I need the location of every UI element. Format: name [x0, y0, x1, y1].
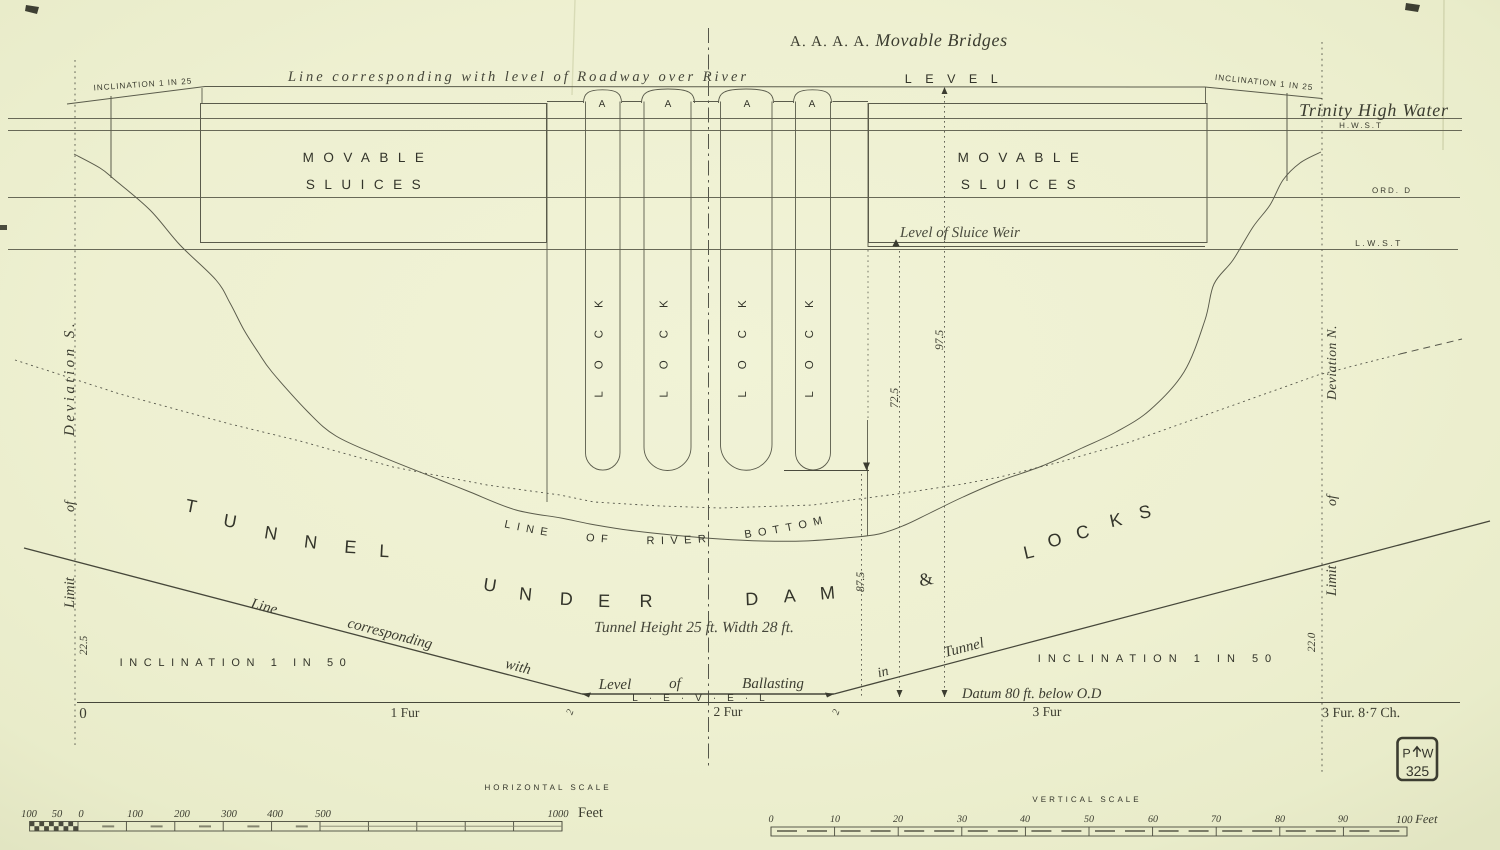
svg-text:A: A [783, 586, 796, 607]
svg-text:100: 100 [127, 809, 144, 820]
svg-text:P: P [1402, 747, 1410, 761]
svg-text:10: 10 [830, 814, 840, 825]
svg-text:A: A [665, 99, 672, 110]
svg-text:LOCK: LOCK [594, 278, 606, 397]
svg-text:LOCK: LOCK [737, 278, 749, 397]
svg-text:22.0: 22.0 [1306, 632, 1318, 652]
svg-text:Level: Level [598, 677, 631, 693]
svg-text:LEVEL: LEVEL [905, 72, 1011, 86]
svg-text:20: 20 [893, 814, 903, 825]
svg-text:1 Fur: 1 Fur [391, 705, 420, 720]
svg-text:LOCK: LOCK [659, 278, 671, 397]
svg-text:200: 200 [174, 809, 191, 820]
svg-text:N: N [303, 531, 318, 552]
svg-text:MOVABLE: MOVABLE [303, 150, 434, 165]
svg-text:A: A [809, 99, 816, 110]
svg-text:50: 50 [52, 809, 63, 820]
svg-text:87.5: 87.5 [855, 572, 867, 592]
svg-text:Line corresponding with level: Line corresponding with level of Roadway… [287, 69, 746, 85]
svg-text:E: E [344, 537, 357, 558]
svg-text:500: 500 [315, 809, 332, 820]
svg-text:INCLINATION 1 IN 50: INCLINATION 1 IN 50 [120, 657, 353, 669]
svg-text:Feet: Feet [578, 805, 603, 821]
svg-text:100: 100 [21, 809, 38, 820]
svg-text:A: A [744, 99, 751, 110]
svg-text:3 Fur. 8·7 Ch.: 3 Fur. 8·7 Ch. [1322, 706, 1400, 721]
svg-text:100 Feet: 100 Feet [1396, 812, 1438, 826]
svg-text:of: of [669, 676, 683, 692]
svg-text:LOCK: LOCK [804, 278, 816, 397]
svg-text:40: 40 [1020, 814, 1030, 825]
svg-text:2 Fur: 2 Fur [714, 704, 743, 719]
svg-text:325: 325 [1406, 763, 1430, 779]
svg-text:0: 0 [769, 814, 774, 825]
svg-text:Limit: Limit [62, 576, 78, 609]
svg-text:HORIZONTAL SCALE: HORIZONTAL SCALE [484, 783, 611, 792]
svg-text:W: W [1422, 747, 1434, 761]
svg-text:D: D [745, 589, 759, 609]
svg-text:0: 0 [79, 706, 87, 722]
svg-text:Tunnel Height 25 ft. Width 28: Tunnel Height 25 ft. Width 28 ft. [594, 619, 794, 636]
svg-text:Level of Sluice Weir: Level of Sluice Weir [899, 225, 1020, 241]
svg-text:Datum 80 ft. below O.D: Datum 80 ft. below O.D [961, 686, 1102, 702]
svg-text:0: 0 [78, 809, 84, 820]
svg-text:SLUICES: SLUICES [961, 177, 1085, 192]
svg-text:R: R [640, 591, 653, 611]
svg-text:30: 30 [956, 814, 967, 825]
svg-text:SLUICES: SLUICES [306, 177, 430, 192]
svg-text:60: 60 [1148, 814, 1158, 825]
svg-text:400: 400 [267, 809, 284, 820]
svg-text:M: M [819, 582, 836, 603]
svg-text:MOVABLE: MOVABLE [958, 150, 1089, 165]
svg-text:72.5: 72.5 [889, 388, 901, 408]
svg-text:1000: 1000 [548, 809, 570, 820]
svg-text:300: 300 [220, 809, 238, 820]
svg-text:A: A [599, 99, 606, 110]
svg-text:H.W.S.T: H.W.S.T [1339, 121, 1383, 130]
svg-text:D: D [559, 589, 573, 610]
svg-text:VERTICAL SCALE: VERTICAL SCALE [1032, 795, 1141, 804]
svg-text:70: 70 [1211, 814, 1221, 825]
svg-text:E: E [598, 591, 610, 611]
svg-text:L: L [379, 541, 390, 561]
svg-text:90: 90 [1338, 814, 1348, 825]
svg-text:22.5: 22.5 [78, 635, 90, 655]
svg-text:N: N [518, 583, 533, 604]
svg-text:L.W.S.T: L.W.S.T [1355, 238, 1403, 248]
svg-text:INCLINATION 1 IN 50: INCLINATION 1 IN 50 [1038, 653, 1278, 665]
svg-text:Deviation N.: Deviation N. [1324, 325, 1339, 401]
svg-text:97.5: 97.5 [934, 330, 946, 350]
svg-text:Ballasting: Ballasting [742, 676, 804, 692]
svg-text:3 Fur: 3 Fur [1033, 704, 1062, 719]
svg-text:Limit: Limit [1324, 564, 1340, 597]
svg-text:80: 80 [1275, 814, 1285, 825]
svg-text:Deviation S.: Deviation S. [62, 320, 78, 437]
svg-text:ORD. D: ORD. D [1372, 186, 1412, 195]
svg-text:50: 50 [1084, 814, 1094, 825]
